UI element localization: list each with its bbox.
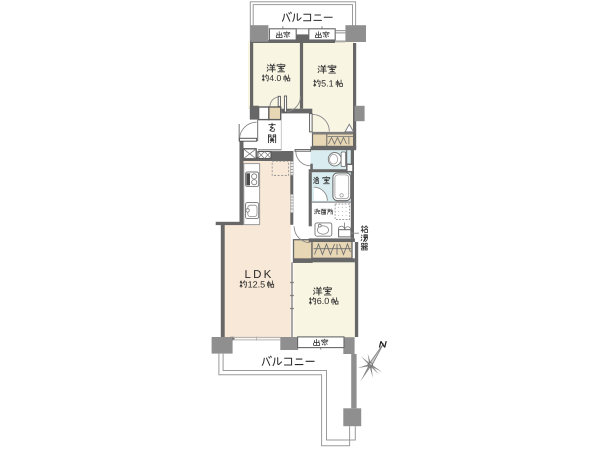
svg-text:12.5: 12.5: [248, 279, 266, 289]
svg-text:4.0: 4.0: [269, 73, 281, 83]
svg-text:5.1: 5.1: [321, 79, 334, 89]
svg-text:6.0: 6.0: [317, 296, 330, 306]
